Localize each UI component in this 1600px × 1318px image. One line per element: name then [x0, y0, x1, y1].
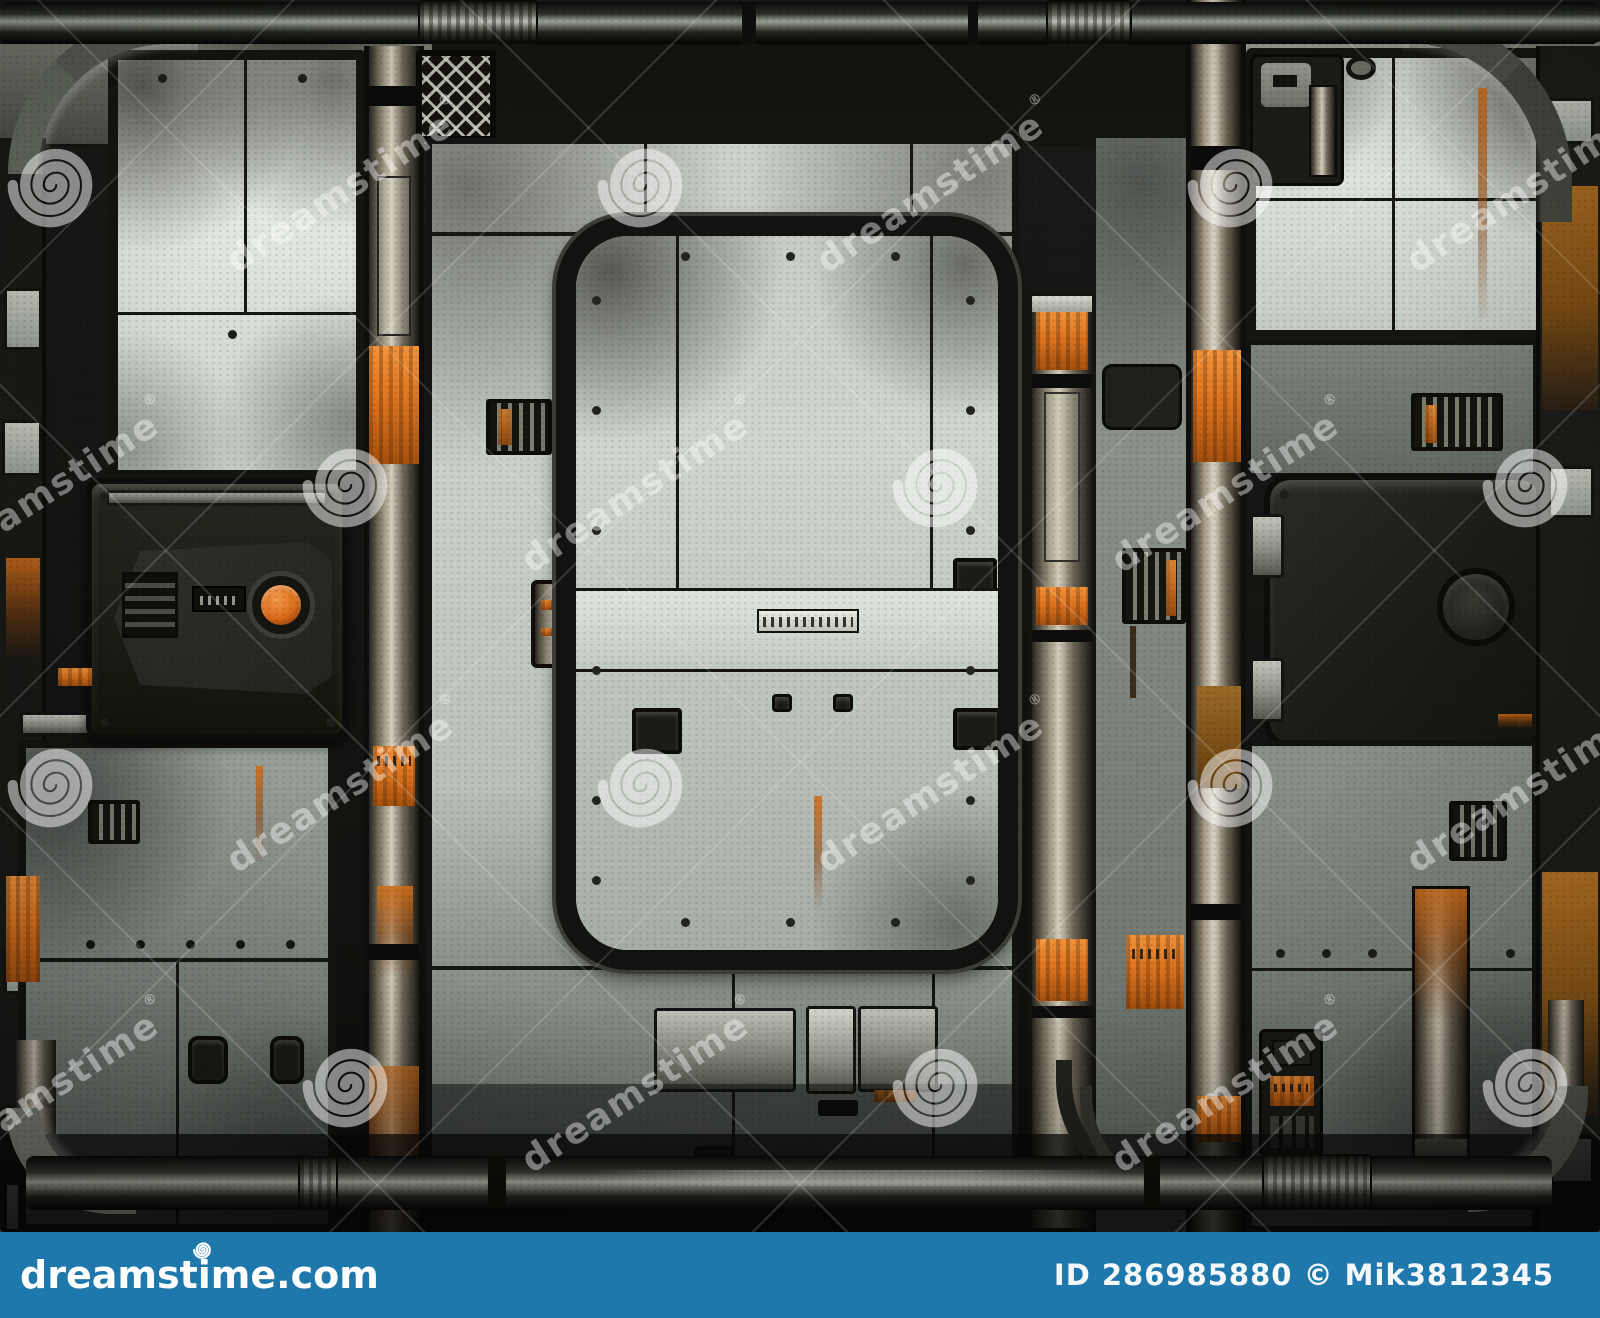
channel-plate: [2, 420, 42, 476]
rust-streak: [1415, 889, 1467, 1019]
door-seam: [676, 236, 679, 588]
pipe-coupling: [1262, 1154, 1372, 1210]
conduit-glass: [1044, 392, 1080, 562]
panel-seam: [118, 312, 356, 315]
door-seam: [930, 236, 933, 588]
beam-band: [369, 944, 419, 960]
pipe-ring: [968, 2, 978, 44]
stock-photo-preview: dreamstime®dreamstime®dreamstime®dreamst…: [0, 0, 1600, 1318]
pipe-coupling: [1046, 0, 1132, 44]
bolt: [326, 718, 335, 727]
orange-decal: [1036, 312, 1088, 370]
rivet-row: [86, 940, 95, 949]
orange-label: [373, 746, 415, 806]
conduit-cap: [1032, 296, 1092, 312]
beam-band: [1191, 146, 1241, 170]
door-hatch-small: [953, 558, 997, 592]
orange-edge-band: [6, 876, 40, 982]
door-label: [757, 609, 859, 633]
panel-right-dark: [1264, 474, 1546, 748]
orange-decal: [1193, 350, 1241, 462]
rust-streak: [377, 886, 413, 974]
hatch-door: [556, 216, 1018, 970]
beam-glass-strip: [377, 176, 411, 336]
channel-plate: [1548, 466, 1594, 518]
rust-patch: [1197, 686, 1241, 788]
control-box: [86, 478, 348, 740]
door-hatch: [632, 708, 682, 754]
keypad-screen: [1272, 1040, 1312, 1066]
hinge-tab: [1250, 514, 1284, 578]
orange-decal: [1036, 939, 1088, 1001]
device-grate: [1122, 548, 1186, 624]
bolt: [100, 492, 109, 501]
weld-seam: [106, 490, 328, 506]
hatch-door-face: [576, 236, 998, 950]
pipe-coupling: [298, 1156, 338, 1210]
label-text-marks: [1132, 949, 1176, 959]
door-hatch-small: [772, 694, 792, 712]
vertical-beam-right: [1186, 0, 1246, 1232]
panel-seam: [1392, 58, 1395, 330]
handle-cutout: [270, 1036, 304, 1084]
orange-decal: [1036, 587, 1088, 625]
conduit-joint: [1032, 630, 1092, 642]
rust-drip: [256, 766, 263, 862]
door-mid-band: [576, 588, 998, 672]
circular-recess: [1437, 568, 1515, 646]
latch-bar: [1309, 85, 1337, 177]
vent-grille: [1411, 393, 1503, 451]
dark-plate: [1102, 364, 1182, 430]
panel-seam: [1252, 968, 1532, 971]
label-text-marks: [1274, 1084, 1308, 1092]
channel-plate: [4, 288, 42, 350]
orange-tag: [58, 668, 92, 686]
dreamstime-logo: dreamstime.com: [20, 1253, 379, 1297]
vertical-beam-left: [364, 46, 424, 1232]
hinge-tab: [1250, 658, 1284, 722]
orange-decal: [369, 346, 419, 464]
rust-scuff: [1498, 714, 1532, 728]
pipe-ring: [488, 1158, 506, 1208]
latch-plate: [806, 1006, 856, 1094]
label-text-marks: [763, 617, 853, 627]
artwork-metal-wall: dreamstime®dreamstime®dreamstime®dreamst…: [0, 0, 1600, 1232]
pipe-top: [0, 2, 1600, 44]
door-hatch: [953, 708, 998, 750]
vent-grate: [1449, 801, 1507, 861]
rivet: [1516, 490, 1525, 499]
pipe-highlight: [586, 1170, 1126, 1186]
latch-hardware-top-right: [1250, 54, 1344, 186]
image-credit: ID 286985880 © Mik3812345: [1054, 1258, 1554, 1292]
pipe-ring: [1144, 1158, 1160, 1208]
orange-glint: [498, 409, 512, 445]
conduit-joint: [1032, 1006, 1092, 1018]
vent-grille: [486, 399, 552, 455]
dreamstime-spiral-icon: [189, 1237, 215, 1263]
orange-glint: [1166, 560, 1176, 616]
oval-port: [1346, 56, 1376, 80]
latch-plate: [654, 1008, 796, 1092]
rust-drip: [814, 796, 822, 908]
pipe-bottom: [26, 1156, 1552, 1210]
latch-slot: [1273, 75, 1297, 87]
beam-band: [1191, 904, 1241, 920]
pipe-coupling: [418, 0, 538, 44]
door-upper-section: [576, 236, 998, 588]
vent-lattice: [416, 50, 496, 142]
door-rivets: [592, 296, 601, 305]
display-digits: [200, 596, 240, 605]
footer-bar: dreamstime.com ID 286985880 © Mik3812345: [0, 1232, 1600, 1318]
rivet: [298, 74, 307, 83]
conduit-joint: [1032, 374, 1092, 388]
pipe-stub-right: [1548, 1000, 1584, 1100]
vent-grate: [88, 800, 140, 844]
beam-band: [369, 86, 419, 106]
door-hatch-small: [833, 694, 853, 712]
panel-seam: [244, 60, 247, 312]
wire: [1130, 626, 1136, 698]
rivet: [1280, 490, 1289, 499]
bolt: [326, 492, 335, 501]
orange-glint: [1425, 405, 1437, 443]
bolt: [100, 718, 109, 727]
rust-streak: [6, 558, 40, 658]
slot-vents: [122, 572, 178, 638]
rivet: [228, 330, 237, 339]
door-lower-section: [576, 672, 998, 950]
orange-button: [252, 576, 310, 634]
keypad-label: [1270, 1076, 1314, 1106]
rivet-row: [1276, 949, 1285, 958]
digital-window: [192, 586, 246, 612]
pipe-ring: [742, 2, 756, 44]
latch-plate: [858, 1006, 938, 1092]
label-text-marks: [377, 756, 411, 766]
panel-mid-right: [1246, 340, 1538, 478]
handle-cutout: [188, 1036, 228, 1084]
orange-label: [1126, 935, 1184, 1009]
